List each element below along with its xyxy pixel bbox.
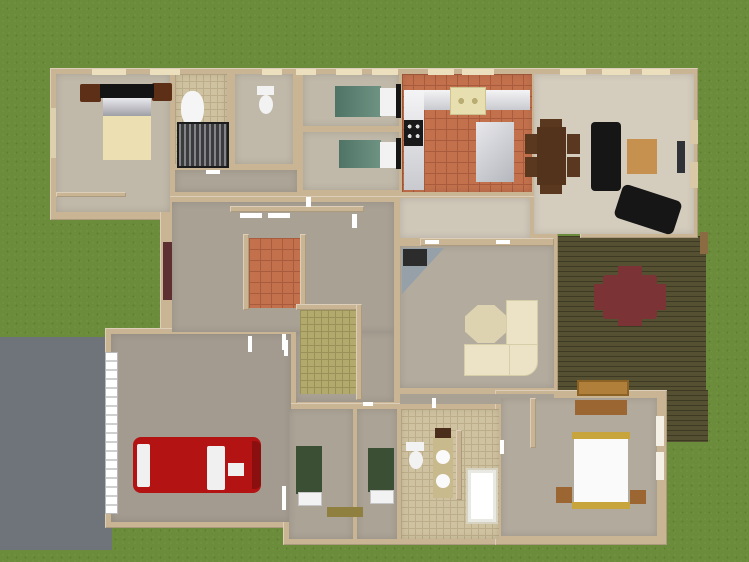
bed3-pillow (380, 142, 396, 168)
garage-door (105, 352, 118, 514)
window-bedroom4-2 (656, 452, 664, 480)
window-top-3 (262, 69, 282, 75)
master-bed-headboard (100, 84, 154, 98)
door-mat (327, 507, 363, 517)
bed2-mattress (335, 86, 381, 117)
window-living-right-1 (690, 120, 698, 144)
dining-chair-right-2 (567, 157, 580, 177)
master-nightstand-right (152, 83, 172, 101)
master-bed-spread (103, 116, 151, 160)
wall-bath-divider (456, 430, 462, 500)
front-door (163, 242, 172, 300)
floor-plan-canvas[interactable] (0, 0, 749, 562)
car-windshield (207, 446, 225, 490)
window-top-7 (428, 69, 454, 75)
living-sofa (591, 122, 621, 191)
master-bath-sink (181, 91, 204, 126)
bath-tub (466, 468, 498, 524)
wall-entry-left (243, 234, 249, 310)
kitchen-sink (450, 87, 486, 115)
window-top-8 (462, 69, 494, 75)
bedroom4-bed (574, 439, 628, 503)
window-top-9 (560, 69, 586, 75)
bedroom4-nightstand-right (630, 490, 646, 504)
living-tv (677, 141, 685, 173)
master-nightstand-left (80, 84, 101, 102)
bath-sink-2 (436, 474, 450, 488)
door-jamb-top-hall (206, 170, 220, 174)
wall-family-top (420, 238, 554, 246)
window-left-master (50, 108, 56, 158)
window-top-1 (92, 69, 126, 75)
master-shower (177, 122, 229, 168)
window-bedroom4-1 (656, 416, 664, 446)
floor-breakfast-nook (400, 198, 530, 238)
bed2-frame (396, 84, 401, 118)
dining-chair-bottom (540, 184, 562, 194)
floor-top-hall (175, 170, 297, 192)
wall-laundry-right (356, 304, 362, 400)
window-top-4 (296, 69, 316, 75)
deck-rail (700, 232, 708, 254)
window-top-10 (602, 69, 630, 75)
car-hood-detail (228, 463, 244, 476)
door-jamb-laundry (352, 214, 357, 228)
bath-sink-1 (436, 450, 450, 464)
door-jamb-family-1 (425, 240, 439, 244)
green-door-1-base (298, 492, 322, 506)
door-jamb-garage-1 (248, 336, 252, 352)
window-top-11 (642, 69, 670, 75)
door-jamb-hall-lower (363, 402, 373, 406)
driveway (0, 337, 112, 550)
car-rear-window (137, 444, 150, 487)
family-sectional-horizontal (464, 344, 510, 376)
wall-bedroom4-closet (530, 398, 536, 448)
dining-table (537, 127, 566, 185)
door-jamb-family-2 (496, 240, 510, 244)
family-sectional-vertical (506, 300, 538, 348)
green-door-2 (368, 448, 394, 492)
wall-hall-closet (230, 206, 364, 212)
bedroom4-bed-trim-top (572, 432, 630, 439)
door-jamb-bedroom3 (306, 197, 311, 207)
bath-vanity (433, 436, 453, 498)
dining-chair-right-1 (567, 134, 580, 154)
wall-master-closet (56, 192, 126, 197)
floor-garage (111, 334, 291, 522)
car-front-end (252, 441, 261, 489)
bedroom4-bed-trim-bottom (572, 502, 630, 509)
floor-laundry (300, 310, 356, 394)
door-jamb-garage-3 (282, 486, 286, 510)
floor-entry-foyer (249, 238, 300, 308)
bed3-frame (396, 138, 401, 169)
family-octagon-table (465, 305, 507, 343)
window-top-2 (150, 69, 180, 75)
family-computer (403, 249, 427, 266)
bedroom4-dresser (575, 400, 627, 415)
door-jamb-closet-2 (268, 213, 290, 218)
living-coffee-table (627, 139, 657, 174)
master-bed-pillows (103, 98, 151, 116)
wc-toilet-bowl (259, 95, 273, 114)
wc-toilet-tank (257, 86, 274, 95)
door-jamb-garage-2 (284, 340, 288, 356)
bed3-mattress (339, 140, 381, 168)
family-sectional-corner (506, 344, 538, 376)
deck-rug-center (603, 275, 657, 319)
wall-entry-right (300, 234, 306, 310)
window-top-6 (372, 69, 398, 75)
kitchen-cooktop (404, 120, 423, 146)
green-door-1 (296, 446, 322, 494)
window-living-right-2 (690, 162, 698, 188)
bath-toilet-tank (406, 442, 424, 451)
deck-bench (577, 380, 629, 396)
door-jamb-closet-1 (240, 213, 262, 218)
bath-toilet-bowl (409, 451, 423, 469)
wall-laundry-top (296, 304, 362, 310)
bedroom4-nightstand-left (556, 487, 572, 503)
green-door-2-base (370, 490, 394, 504)
kitchen-island (476, 122, 514, 182)
door-jamb-hall-bottom (432, 398, 436, 408)
bath-mirror (435, 428, 451, 438)
bed2-pillow (380, 88, 397, 116)
window-top-5 (336, 69, 362, 75)
door-jamb-bedroom4 (500, 440, 504, 454)
